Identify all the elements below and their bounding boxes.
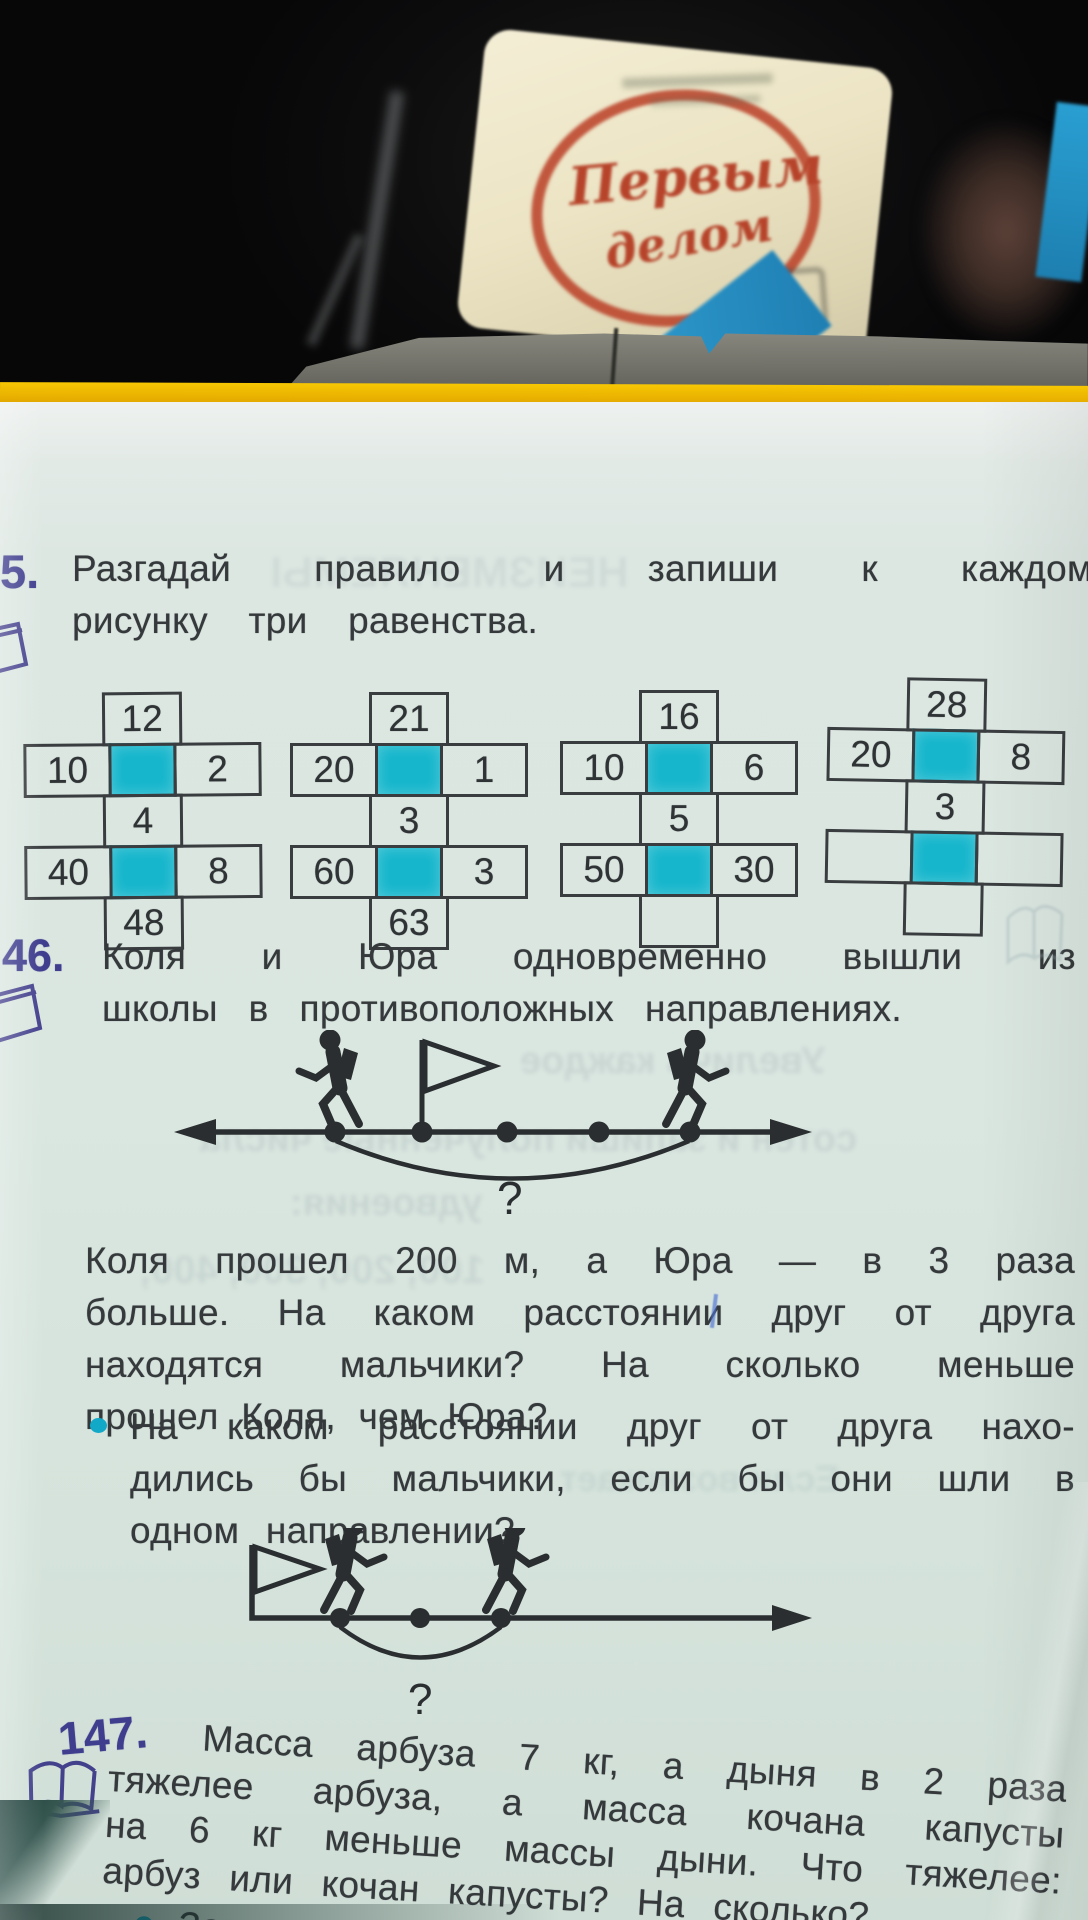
puzzle-teal-cell	[108, 743, 176, 798]
page-corner-shadow	[0, 1800, 110, 1920]
flag-icon	[255, 1547, 320, 1592]
puzzle-cell: 12	[102, 692, 182, 747]
open-book-icon	[21, 1752, 111, 1825]
notebook-icon	[0, 982, 52, 1046]
number-cross-puzzle-2: 21 20 1 3 60 3 63	[290, 692, 528, 952]
bullet-dot	[135, 1916, 153, 1920]
exercise-147-bullet-line: Запиши решение задачи по действиям.	[177, 1904, 911, 1920]
puzzle-cell: 21	[369, 692, 449, 746]
exercise-number-146: 46.	[2, 930, 65, 982]
textbook-page: НЕИЗМЕНЯЕМЫ Увеличь каждое сотен и запиш…	[0, 402, 1088, 1920]
notebook-icon	[0, 620, 36, 680]
puzzle-cell: 20	[290, 743, 378, 797]
puzzle-cell: 4	[103, 794, 183, 849]
puzzle-cell: 16	[639, 690, 719, 744]
show-through-text: Если возникает	[560, 1458, 839, 1500]
show-through-text: НЕИЗМЕНЯЕМЫ	[270, 548, 629, 598]
exercise-147-body-line: тяжелееарбуза,амассакочанакапусты	[107, 1758, 1066, 1861]
exercise-145-text-line: Разгадайправилоизапишиккаждому	[72, 548, 1088, 590]
page-bottom-shadow	[0, 1904, 560, 1920]
puzzle-teal-cell	[645, 843, 713, 897]
puzzle-cell: 10	[560, 741, 648, 795]
exercise-147-body-line: Массаарбуза7кг,адыняв2раза	[201, 1717, 1068, 1814]
show-through-text: удвоения:	[290, 1182, 483, 1225]
number-cross-puzzle-4: 28 20 8 3	[824, 676, 1067, 940]
exercise-146-bullet-line: одном направлении?	[130, 1510, 515, 1552]
puzzle-teal-cell	[911, 728, 980, 783]
puzzle-cell: 8	[174, 844, 262, 899]
exercise-146-body-line: прошел Коля, чем Юра?	[85, 1396, 548, 1438]
bullet-dot	[90, 1418, 107, 1433]
page-crease	[940, 1482, 1088, 1920]
number-cross-puzzle-1: 12 10 2 4 40 8 48	[23, 691, 263, 953]
puzzle-teal-cell	[375, 743, 443, 797]
package-small-print	[622, 73, 772, 88]
food-package: Первым делом	[455, 27, 894, 368]
puzzle-teal-cell	[910, 830, 979, 885]
plastic-wrap-highlight	[350, 91, 405, 350]
puzzle-cell: 3	[905, 779, 986, 834]
distance-question-mark: ?	[408, 1675, 432, 1724]
puzzle-cell	[639, 894, 719, 948]
number-cross-puzzle-3: 16 10 6 5 50 30	[560, 690, 798, 950]
puzzle-cell: 10	[23, 743, 111, 798]
walker-left-icon	[299, 1030, 359, 1125]
puzzle-teal-cell	[375, 845, 443, 899]
exercise-146-bullet-line: дилисьбымальчики,еслибыонишлив	[130, 1458, 1075, 1500]
puzzle-cell: 48	[104, 896, 184, 951]
puzzle-teal-cell	[645, 741, 713, 795]
puzzle-cell: 50	[560, 843, 648, 897]
exercise-146-body-line: находятсямальчики?Насколькоменьше	[85, 1344, 1075, 1386]
puzzle-cell: 3	[369, 794, 449, 848]
photographed-textbook-page: Первым делом НЕИЗМЕНЯЕМЫ Увеличь каждое …	[0, 0, 1088, 1920]
puzzle-cell: 6	[710, 741, 798, 795]
distance-question-mark: ?	[497, 1172, 523, 1224]
puzzle-cell	[903, 881, 984, 936]
flag-icon	[425, 1042, 494, 1091]
walker-right-icon	[666, 1030, 726, 1125]
puzzle-cell: 40	[24, 845, 112, 900]
puzzle-cell: 5	[639, 792, 719, 846]
show-through-text: Увеличь каждое	[520, 1040, 825, 1083]
walker-icon	[486, 1528, 546, 1611]
puzzle-cell: 63	[369, 896, 449, 950]
puzzle-cell: 3	[440, 845, 528, 899]
puzzle-cell: 60	[290, 845, 378, 899]
show-through-text: сотен и запиши полученные числа	[200, 1118, 857, 1161]
same-direction-diagram: ?	[170, 1528, 850, 1724]
puzzle-teal-cell	[109, 845, 177, 900]
exercise-145-text-line: рисунку три равенства.	[72, 600, 538, 642]
puzzle-cell: 8	[976, 730, 1065, 786]
puzzle-cell: 2	[173, 742, 261, 797]
exercise-146-intro-line: КоляиЮраодновременновышлииз	[102, 936, 1076, 978]
puzzle-cell: 28	[906, 677, 987, 732]
exercise-146-bullet-line: Накакомрасстояниидруготдруганахо-	[130, 1406, 1075, 1448]
puzzle-cell: 20	[826, 727, 915, 783]
exercise-146-body-line: больше.Накакомрасстояниидруготдруга	[85, 1292, 1075, 1334]
puzzle-cell	[825, 829, 914, 885]
puzzle-cell: 30	[710, 843, 798, 897]
show-through-text: 100, 200, 300, 400,	[140, 1248, 485, 1293]
exercise-147-block: Массаарбуза7кг,адыняв2раза тяжелееарбуза…	[98, 1712, 1068, 1920]
puzzle-cell: 1	[440, 743, 528, 797]
opposite-directions-diagram: ?	[160, 1030, 840, 1230]
exercise-146-intro-line: школывпротивоположныхнаправлениях.	[102, 988, 902, 1030]
exercise-147-body-line: арбуз или кочан капусты? На сколько?	[101, 1850, 1060, 1920]
exercise-147-bullet-row: Запиши решение задачи по действиям.	[134, 1902, 1057, 1920]
exercise-number-145: 5.	[0, 544, 39, 599]
walker-icon	[324, 1528, 384, 1611]
puzzle-cell	[975, 832, 1064, 888]
show-through-book-icon	[1000, 888, 1070, 988]
pen-mark	[710, 1294, 718, 1328]
exercise-number-147: 147.	[56, 1704, 150, 1766]
exercise-146-body-line: Коляпрошел200м,аЮра—в3раза	[85, 1240, 1075, 1282]
photo-background: Первым делом	[0, 0, 1088, 404]
exercise-147-body-line: на6кгменьшемассыдыни.Чтотяжелее:	[104, 1804, 1063, 1907]
